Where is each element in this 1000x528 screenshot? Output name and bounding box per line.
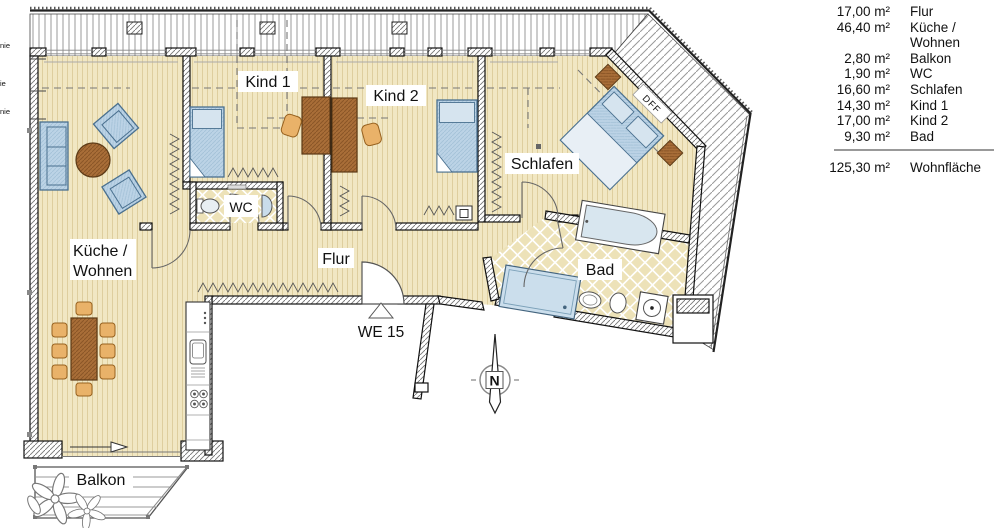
- entry-marker: [369, 303, 393, 318]
- washing-machine-icon: [636, 292, 668, 324]
- sofa: [40, 122, 68, 190]
- label-kueche-1: Küche /: [73, 243, 128, 260]
- legend-row: 2,80 m²Balkon: [822, 51, 998, 67]
- label-bad: Bad: [586, 262, 614, 279]
- unit-label: WE 15: [358, 324, 405, 341]
- svg-text:nie: nie: [0, 107, 10, 116]
- toilet-icon: [201, 199, 219, 213]
- kind1-bed: [190, 107, 224, 177]
- legend-total-row: 125,30 m²Wohnfläche: [822, 160, 998, 176]
- legend-row: 17,00 m²Kind 2: [822, 113, 998, 129]
- legend-row: 16,60 m²Schlafen: [822, 82, 998, 98]
- label-kind1: Kind 1: [245, 74, 290, 91]
- legend-row: 9,30 m²Bad: [822, 129, 998, 145]
- label-kind2: Kind 2: [373, 88, 418, 105]
- legend-row: Wohnen: [822, 35, 998, 51]
- svg-text:ie: ie: [0, 79, 6, 88]
- kind1-desk: [302, 97, 330, 154]
- dining-table: [71, 318, 97, 380]
- legend-row: 17,00 m²Flur: [822, 4, 998, 20]
- svg-text:nie: nie: [0, 41, 10, 50]
- schlafen-marker: [536, 144, 541, 149]
- label-balkon: Balkon: [77, 472, 126, 489]
- legend-row: 46,40 m²Küche /: [822, 20, 998, 36]
- kind2-desk: [332, 98, 357, 172]
- area-legend: 17,00 m²Flur 46,40 m²Küche / Wohnen 2,80…: [822, 4, 998, 176]
- legend-row: 1,90 m²WC: [822, 66, 998, 82]
- label-wc: WC: [229, 199, 252, 215]
- kitchen-counter: [186, 302, 210, 450]
- coffee-table: [76, 143, 110, 177]
- floor-plan-page: WE 15 N DFF nie ie nie Kind 1 Kind 2 Sch…: [0, 0, 1000, 528]
- legend-row: 14,30 m²Kind 1: [822, 98, 998, 114]
- label-schlafen: Schlafen: [511, 156, 573, 173]
- legend-separator: [834, 149, 994, 151]
- compass-icon: N: [471, 334, 519, 413]
- label-kueche-2: Wohnen: [73, 263, 132, 280]
- kind2-bed: [437, 100, 477, 172]
- label-flur: Flur: [322, 251, 350, 268]
- compass-north-label: N: [489, 373, 499, 389]
